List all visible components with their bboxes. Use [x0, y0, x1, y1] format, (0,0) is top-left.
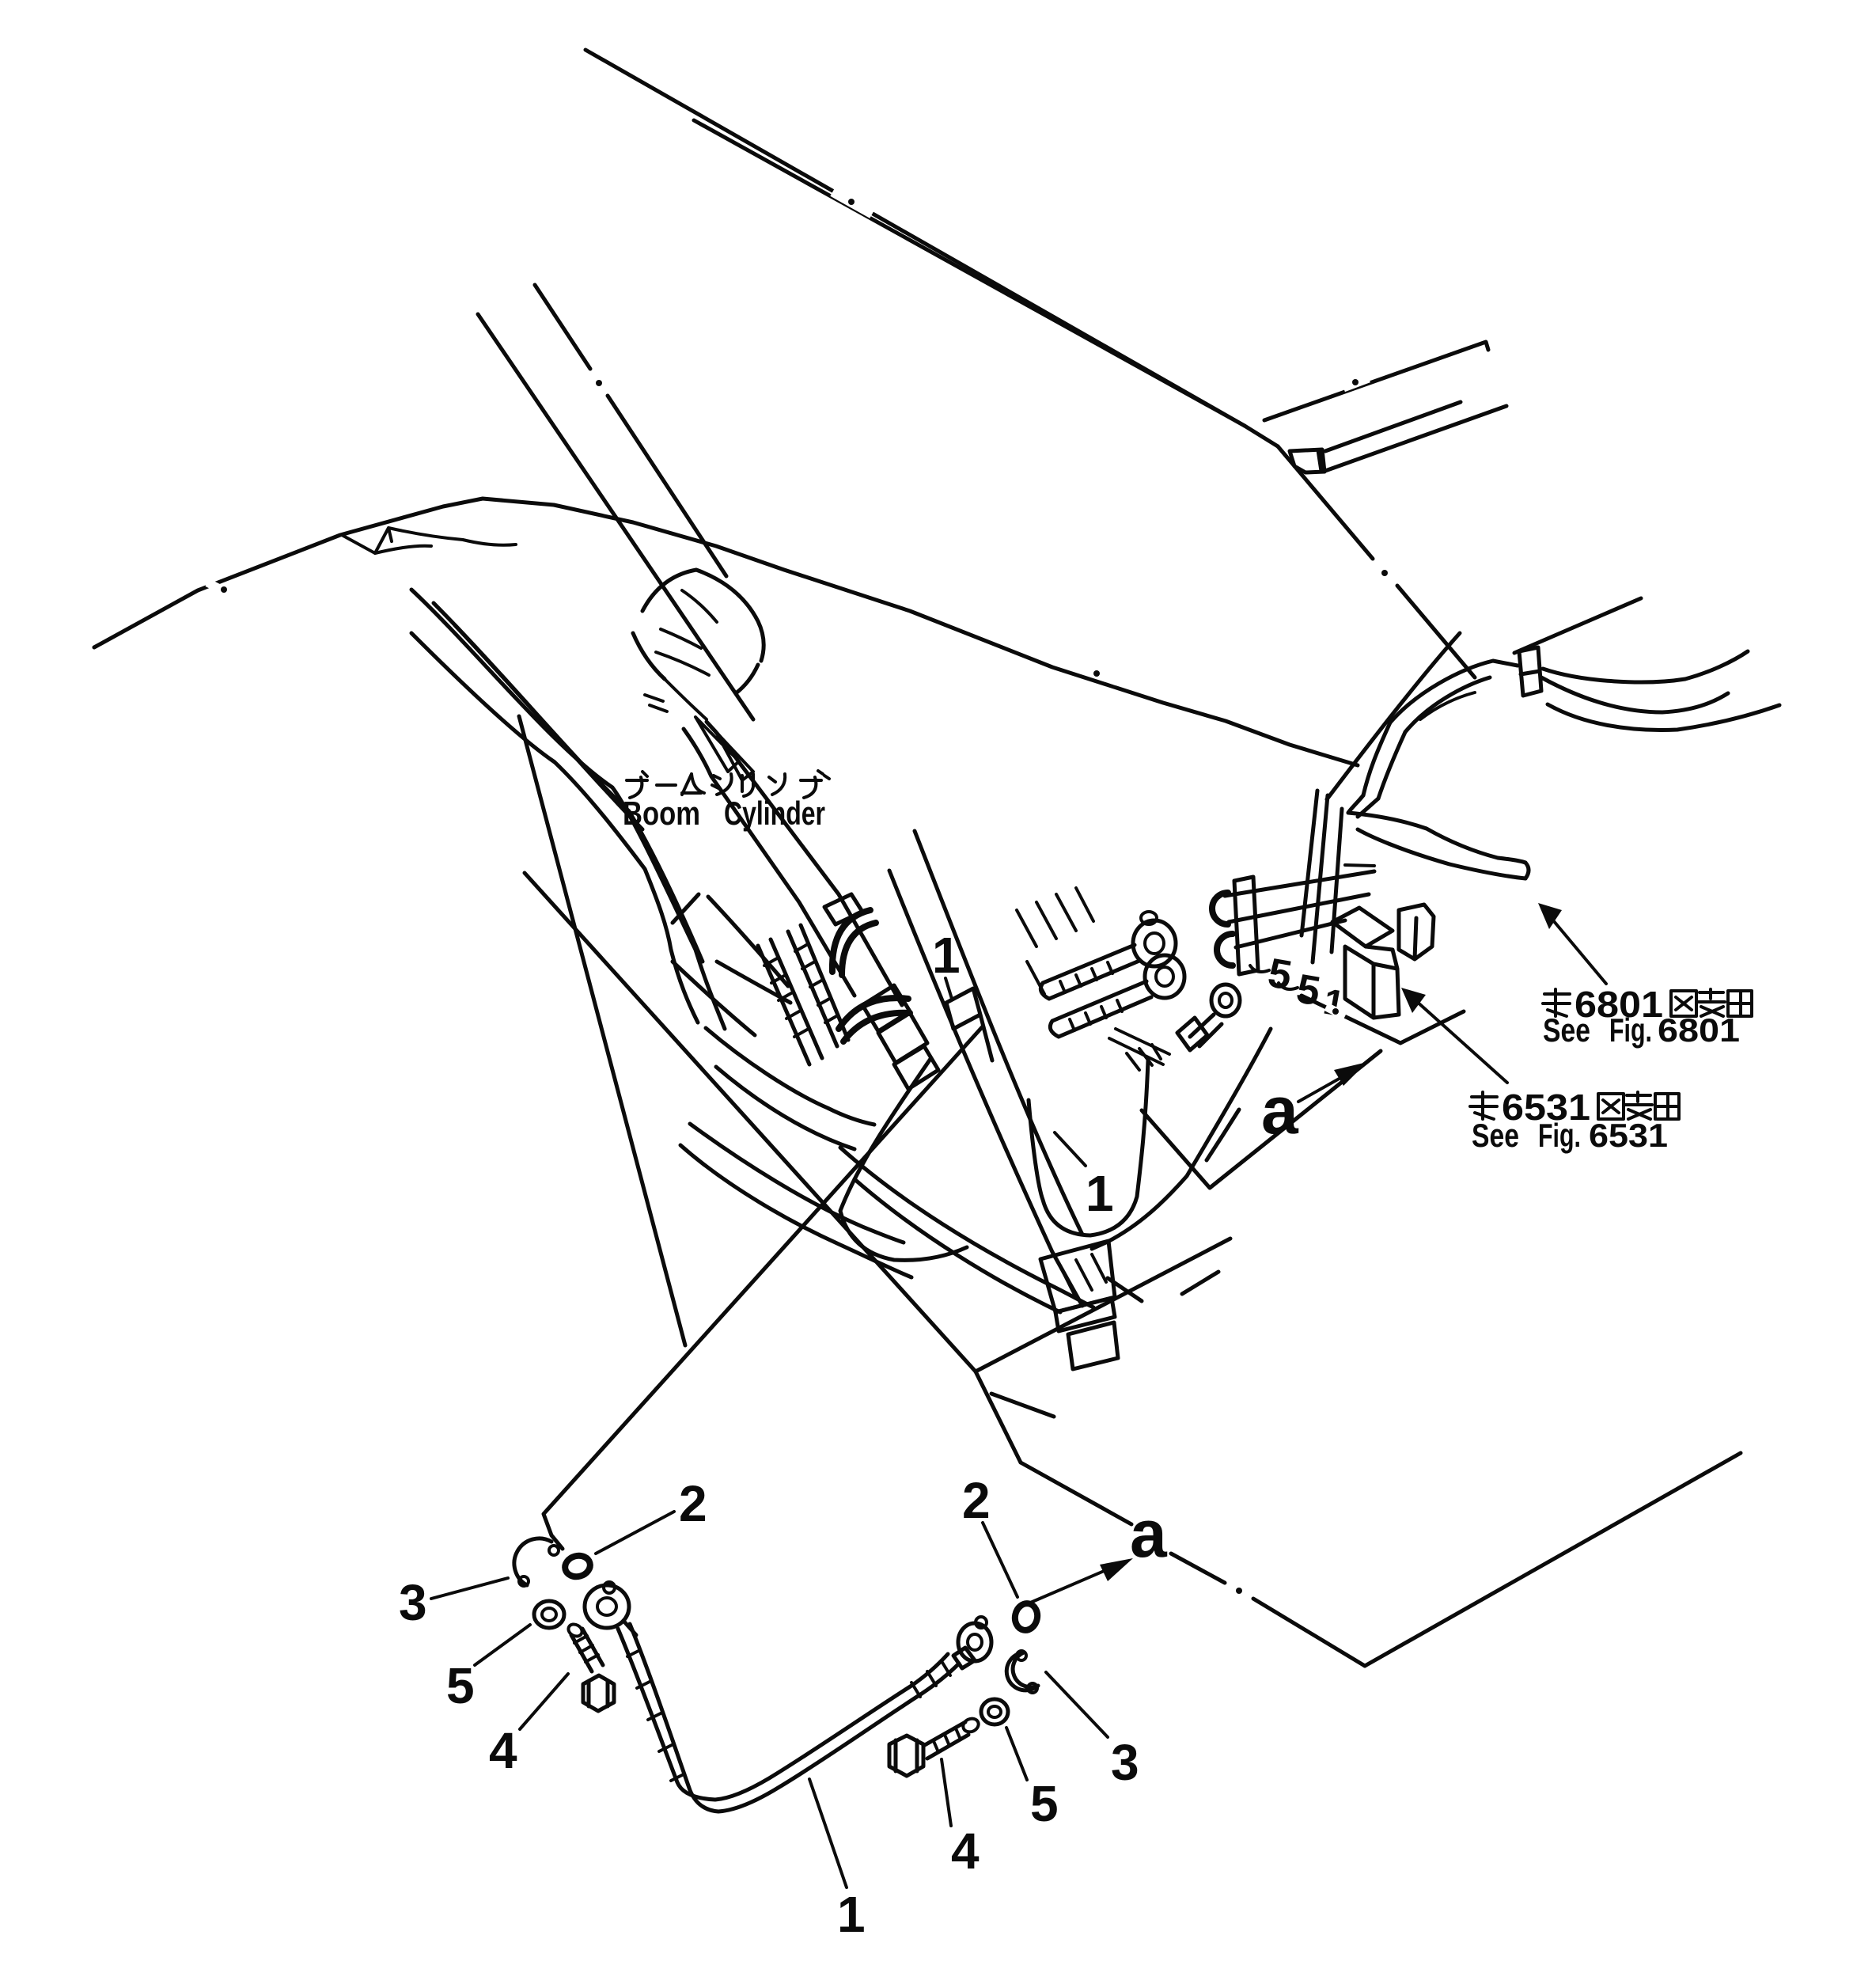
svg-text:1: 1 [837, 1886, 866, 1943]
svg-text:Boom: Boom [623, 795, 700, 832]
svg-text:See: See [1543, 1011, 1590, 1049]
svg-text:3: 3 [1111, 1734, 1139, 1791]
svg-text:Cylinder: Cylinder [724, 795, 825, 832]
svg-text:4: 4 [951, 1823, 980, 1880]
svg-text:a: a [1130, 1497, 1168, 1571]
svg-text:6531: 6531 [1589, 1117, 1668, 1154]
svg-text:5: 5 [1030, 1775, 1059, 1832]
svg-text:Fig.: Fig. [1609, 1011, 1652, 1049]
svg-text:a: a [1261, 1073, 1299, 1148]
svg-text:4: 4 [489, 1722, 517, 1779]
svg-text:1: 1 [1086, 1165, 1114, 1222]
svg-text:Fig.: Fig. [1538, 1117, 1581, 1154]
svg-text:See: See [1472, 1117, 1519, 1154]
svg-text:3: 3 [399, 1574, 427, 1631]
svg-text:2: 2 [962, 1472, 991, 1529]
svg-text:5: 5 [446, 1657, 475, 1714]
svg-text:2: 2 [679, 1475, 707, 1532]
svg-text:6801: 6801 [1658, 1011, 1740, 1049]
